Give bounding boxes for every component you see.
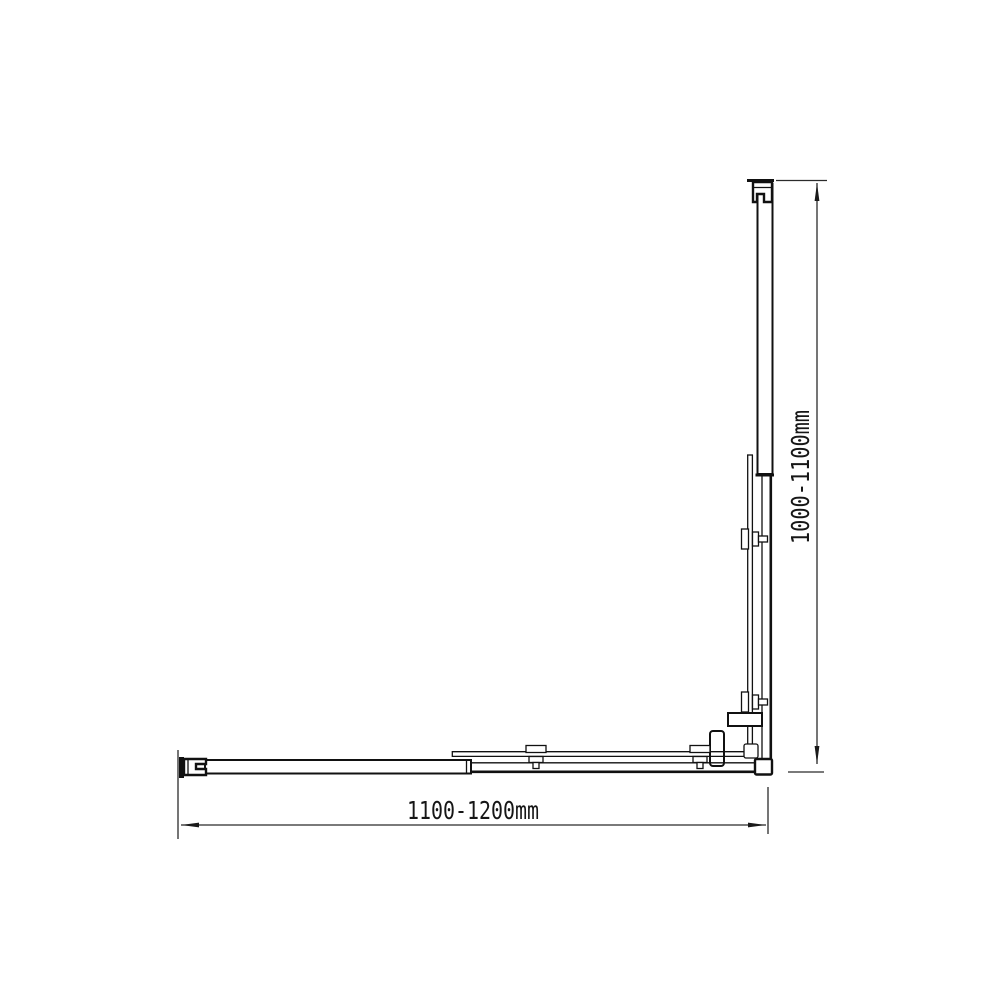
outer-corner-block	[755, 759, 772, 775]
wall-profile-left-body	[184, 759, 206, 775]
horizontal-frame-profile	[205, 760, 471, 774]
width-dimension-label: 1100-1200mm	[407, 796, 539, 825]
drawing-canvas: 1000-1100mm 1100-1200mm	[0, 0, 1000, 1000]
shower-screen-diagram: 1000-1100mm 1100-1200mm	[0, 0, 1000, 1000]
clamp-bracket	[693, 757, 707, 763]
corner-junction	[744, 744, 772, 775]
clamp-stem	[759, 536, 768, 542]
clamp-bracket	[753, 695, 759, 709]
arrowhead-up-icon	[815, 183, 820, 201]
clamp-stem	[759, 699, 768, 705]
clamp-stem	[697, 763, 703, 769]
clamp-bracket	[753, 532, 759, 546]
clamp-pad	[742, 692, 749, 712]
height-dimension-label: 1000-1100mm	[786, 410, 815, 544]
horizontal-assembly	[182, 746, 758, 779]
clamp-pad	[742, 529, 749, 549]
vertical-frame-profile	[758, 184, 773, 474]
corner-knob	[710, 731, 724, 766]
glass-clamp-vertical-lower	[742, 692, 768, 712]
inner-corner-elbow	[744, 744, 758, 758]
wall-profile-left	[182, 757, 207, 778]
arrowhead-down-icon	[815, 746, 820, 764]
glass-clamp-vertical-upper	[742, 529, 768, 549]
clamp-bracket	[529, 757, 543, 763]
vertical-assembly	[710, 181, 774, 773]
support-bracket	[728, 713, 762, 726]
arrowhead-right-icon	[748, 823, 766, 828]
dimension-vertical: 1000-1100mm	[776, 181, 827, 773]
clamp-stem	[533, 763, 539, 769]
clamp-pad	[526, 746, 546, 753]
arrowhead-left-icon	[181, 823, 199, 828]
glass-clamp-horizontal-left	[526, 746, 546, 769]
glass-clamp-horizontal-right	[690, 746, 710, 769]
clamp-pad	[690, 746, 710, 753]
